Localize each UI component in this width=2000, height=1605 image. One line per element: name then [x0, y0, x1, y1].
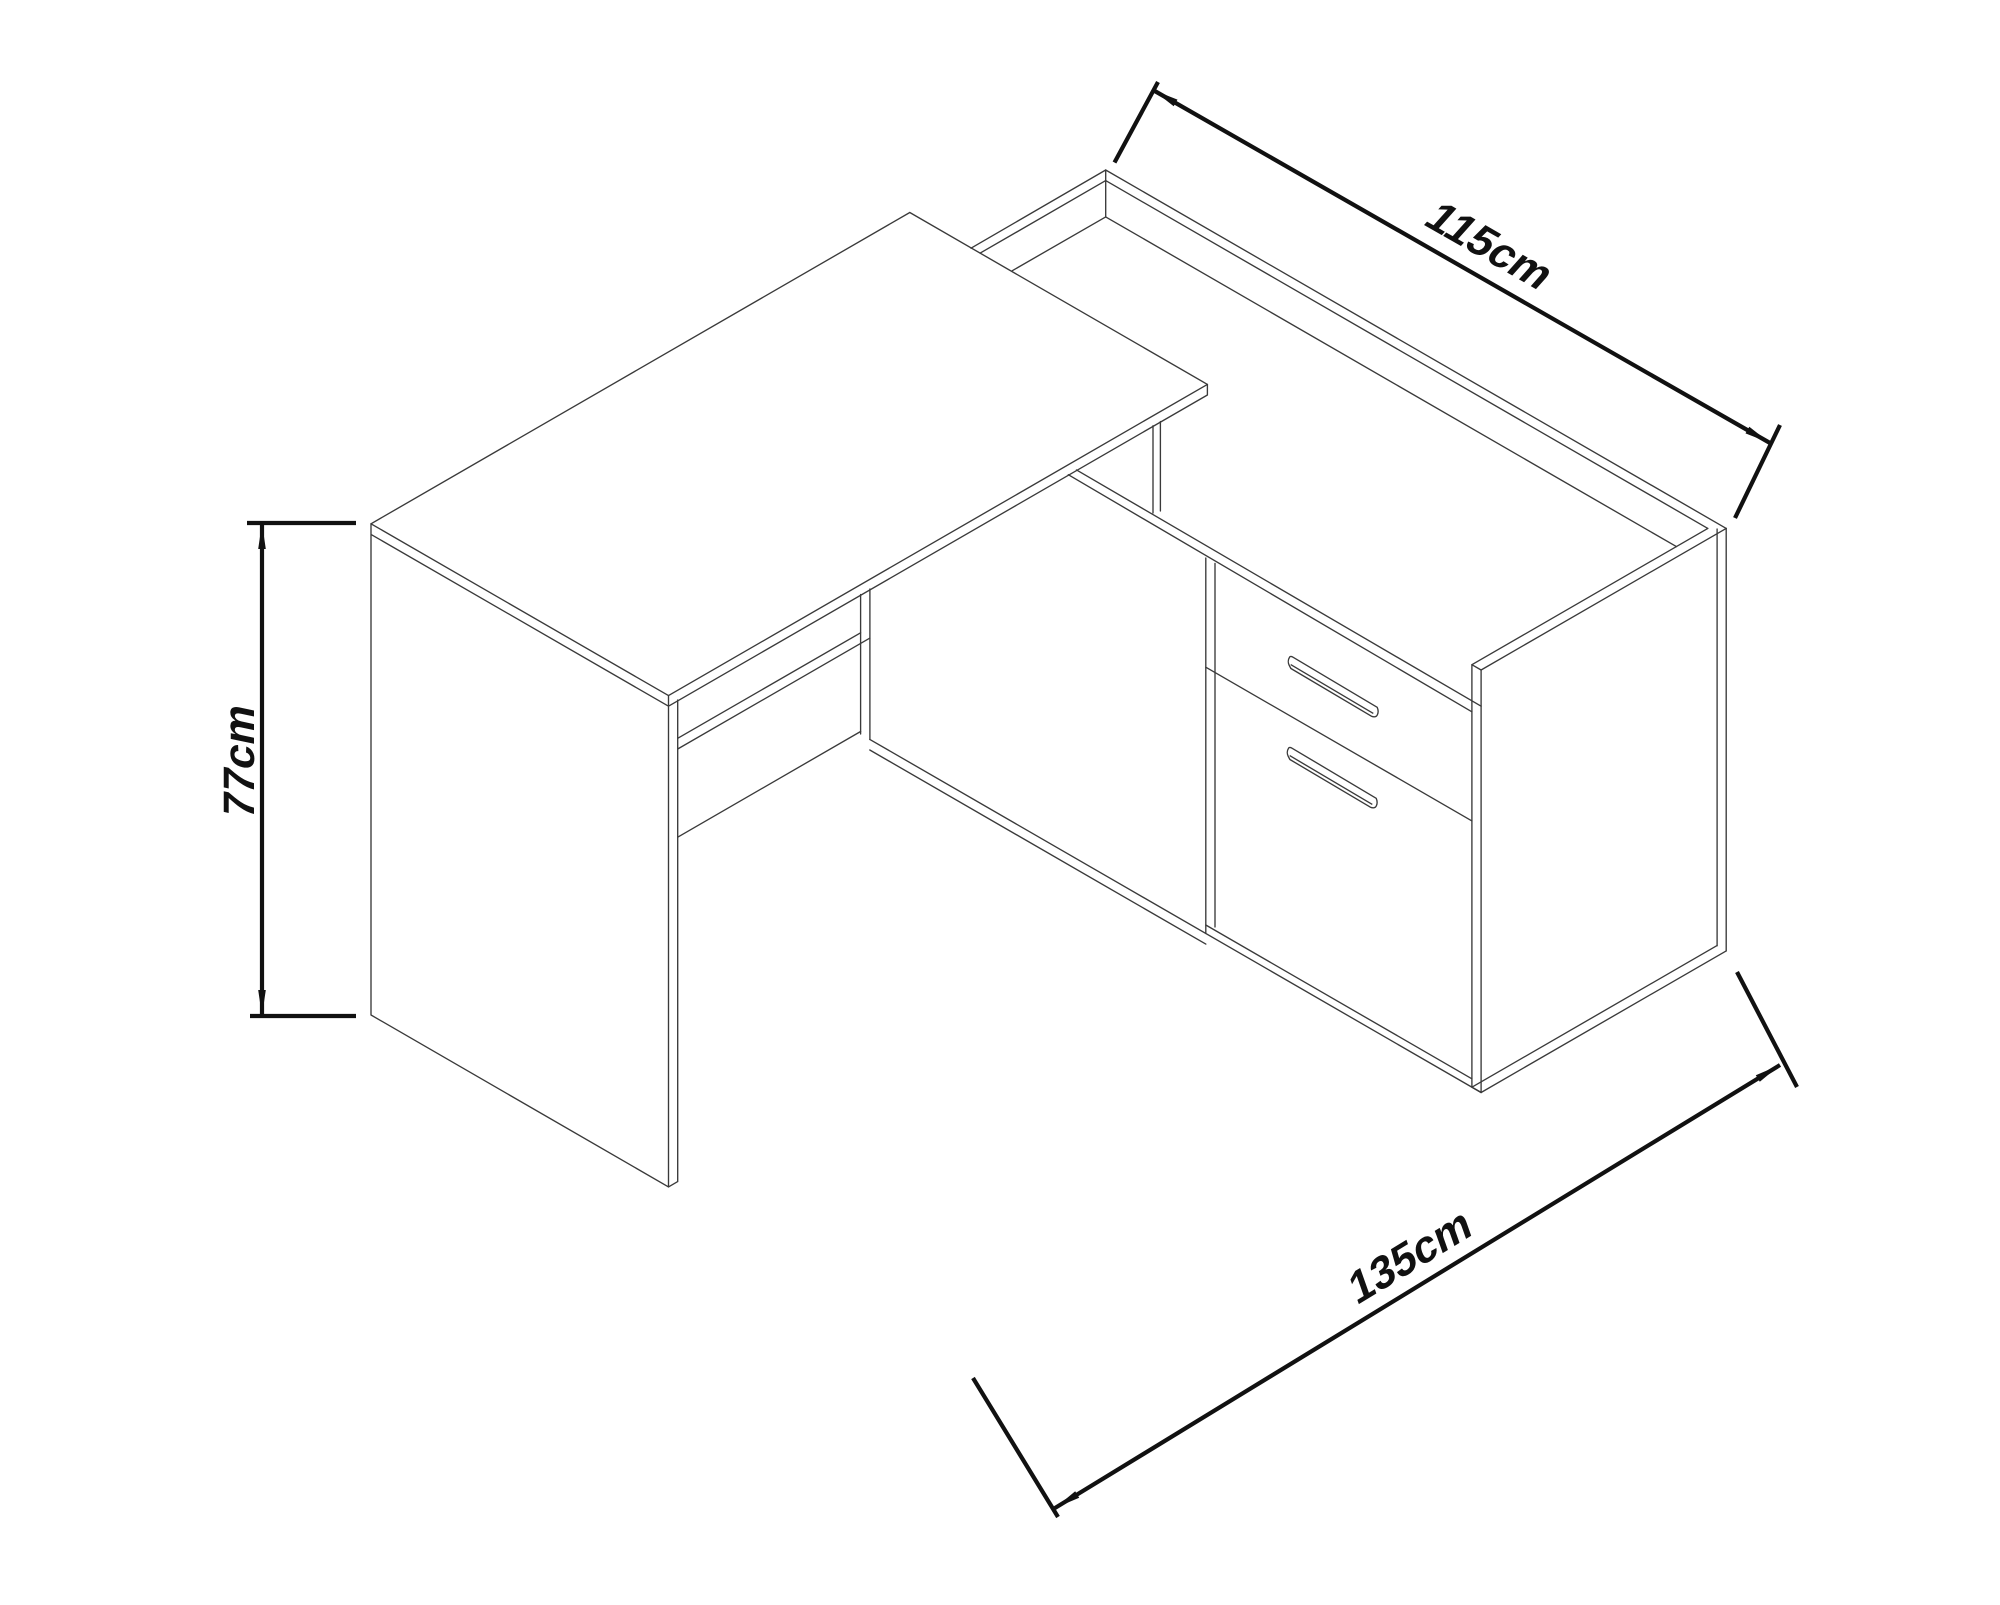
svg-text:77cm: 77cm [215, 700, 263, 823]
